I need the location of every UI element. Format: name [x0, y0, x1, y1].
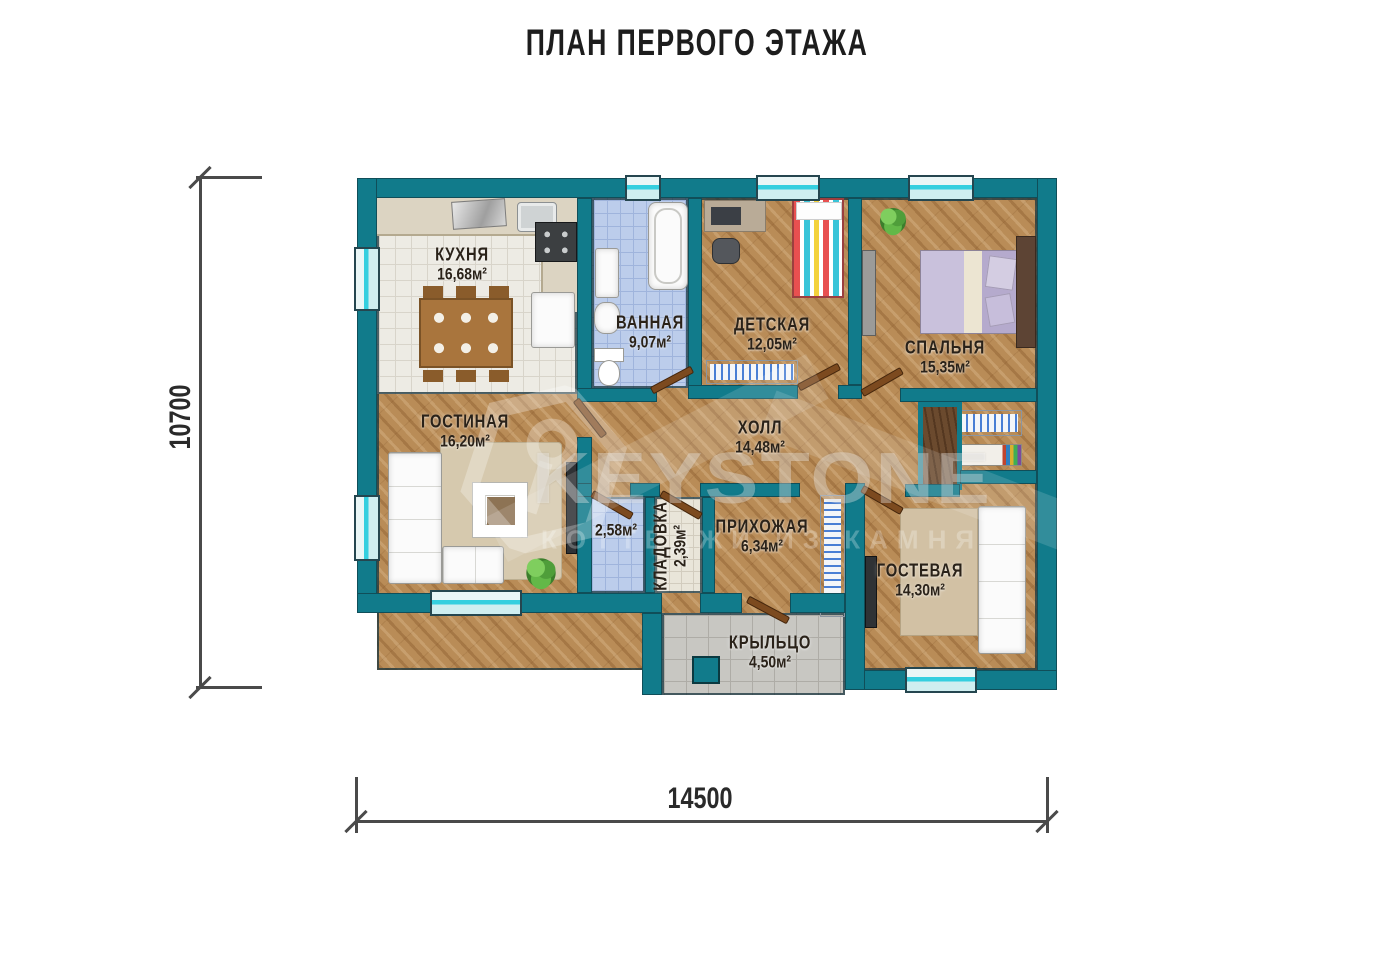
room-name: СПАЛЬНЯ [905, 337, 985, 357]
living-sofa-horizontal [442, 546, 504, 584]
room-area: 14,30м² [877, 581, 964, 600]
room-label-bedroom: СПАЛЬНЯ 15,35м² [905, 337, 985, 376]
window-living-bottom [430, 590, 522, 616]
wall-nursery-bedroom [848, 198, 862, 385]
dimension-left-cap-top [196, 176, 262, 179]
room-area: 6,34м² [716, 537, 809, 556]
room-name: КРЫЛЬЦО [729, 632, 811, 652]
nursery-desk-icon [704, 200, 766, 232]
room-name: ХОЛЛ [735, 417, 785, 437]
room-name: ВАННАЯ [616, 312, 684, 332]
room-name: ДЕТСКАЯ [734, 314, 810, 334]
dimension-left-cap-bottom [196, 686, 262, 689]
room-name: КЛАДОВКА [650, 501, 670, 590]
window-living-left [354, 495, 380, 561]
room-area: 4,50м² [729, 653, 811, 672]
bedroom-plant-icon [878, 206, 908, 236]
nursery-pillow [796, 202, 842, 220]
bedroom-dresser-icon [862, 250, 876, 336]
window-nursery-top [756, 175, 820, 201]
dimension-height-label: 10700 [164, 384, 198, 449]
wall-porch-stub [642, 613, 662, 695]
room-label-wc: 2,58м² [595, 520, 637, 539]
window-kitchen-left [354, 247, 380, 311]
nursery-bed-icon [792, 198, 844, 298]
porch-mat-icon [692, 656, 720, 684]
bathtub-inner [654, 208, 682, 284]
guest-tv-icon [865, 556, 877, 628]
nursery-computer-icon [711, 207, 741, 225]
room-label-hallway: ПРИХОЖАЯ 6,34м² [716, 516, 809, 555]
wall-exterior-right [1037, 178, 1057, 690]
wall-kitchen-bath [577, 198, 592, 402]
floor-plan-page: ПЛАН ПЕРВОГО ЭТАЖА [0, 0, 1400, 976]
room-area: 2,58м² [595, 520, 637, 539]
room-area: 9,07м² [616, 333, 684, 352]
room-label-living: ГОСТИНАЯ 16,20м² [421, 411, 509, 450]
wall-nursery-bottom-b [838, 385, 862, 399]
nursery-chair-icon [712, 238, 740, 264]
kitchen-chairs-top [423, 286, 509, 298]
room-area: 16,20м² [421, 432, 509, 451]
kitchen-table-icon [419, 298, 513, 368]
dimension-left-line [199, 178, 202, 689]
kitchen-hood-icon [451, 198, 507, 230]
room-area: 12,05м² [734, 335, 810, 354]
room-label-guest: ГОСТЕВАЯ 14,30м² [877, 560, 964, 599]
room-label-kitchen: КУХНЯ 16,68м² [435, 244, 489, 283]
room-label-porch: КРЫЛЬЦО 4,50м² [729, 632, 811, 671]
room-label-hall: ХОЛЛ 14,48м² [735, 417, 785, 456]
dimension-bottom-line [356, 820, 1048, 823]
dimension-width-label: 14500 [667, 782, 732, 816]
kitchen-fridge-icon [531, 292, 575, 348]
living-sofa-vertical [388, 452, 442, 584]
hall-radiator-icon [958, 410, 1022, 436]
room-name: ГОСТЕВАЯ [877, 560, 964, 580]
bathtub-icon [648, 202, 688, 290]
toilet-icon [594, 348, 622, 386]
dimension-bottom-tick-right [1046, 777, 1049, 833]
room-label-storage: КЛАДОВКА 2,39м² [650, 501, 689, 590]
window-guest-bottom [905, 667, 977, 693]
room-area: 16,68м² [435, 265, 489, 284]
wall-bath-nursery [688, 198, 702, 390]
room-name: КУХНЯ [435, 244, 489, 264]
toilet-bowl [598, 360, 620, 386]
wall-hallway-bottom-a [700, 593, 742, 613]
window-bedroom-top [908, 175, 974, 201]
room-area: 15,35м² [905, 358, 985, 377]
bedroom-pillow-1 [985, 255, 1017, 291]
room-label-bathroom: ВАННАЯ 9,07м² [616, 312, 684, 351]
bedroom-pillow-2 [985, 293, 1016, 327]
bath-cabinet-icon [595, 248, 619, 298]
floor-plan: KEYSTONE КОТТЕДЖИ ИЗ КАМНЯ КУХНЯ 16,68м²… [357, 178, 1057, 695]
kitchen-stove-icon [535, 222, 577, 262]
bedroom-headboard-icon [1016, 236, 1036, 348]
wall-bedroom-bottom [900, 388, 1037, 402]
window-bathroom-top [625, 175, 661, 201]
room-area: 14,48м² [735, 438, 785, 457]
room-label-nursery: ДЕТСКАЯ 12,05м² [734, 314, 810, 353]
room-name: ПРИХОЖАЯ [716, 516, 809, 536]
room-name: ГОСТИНАЯ [421, 411, 509, 431]
room-area: 2,39м² [671, 501, 690, 590]
dimension-bottom-tick-left [355, 777, 358, 833]
bedroom-bed-icon [920, 250, 1020, 334]
wall-hallway-bottom-b [790, 593, 845, 613]
page-title: ПЛАН ПЕРВОГО ЭТАЖА [526, 22, 869, 64]
